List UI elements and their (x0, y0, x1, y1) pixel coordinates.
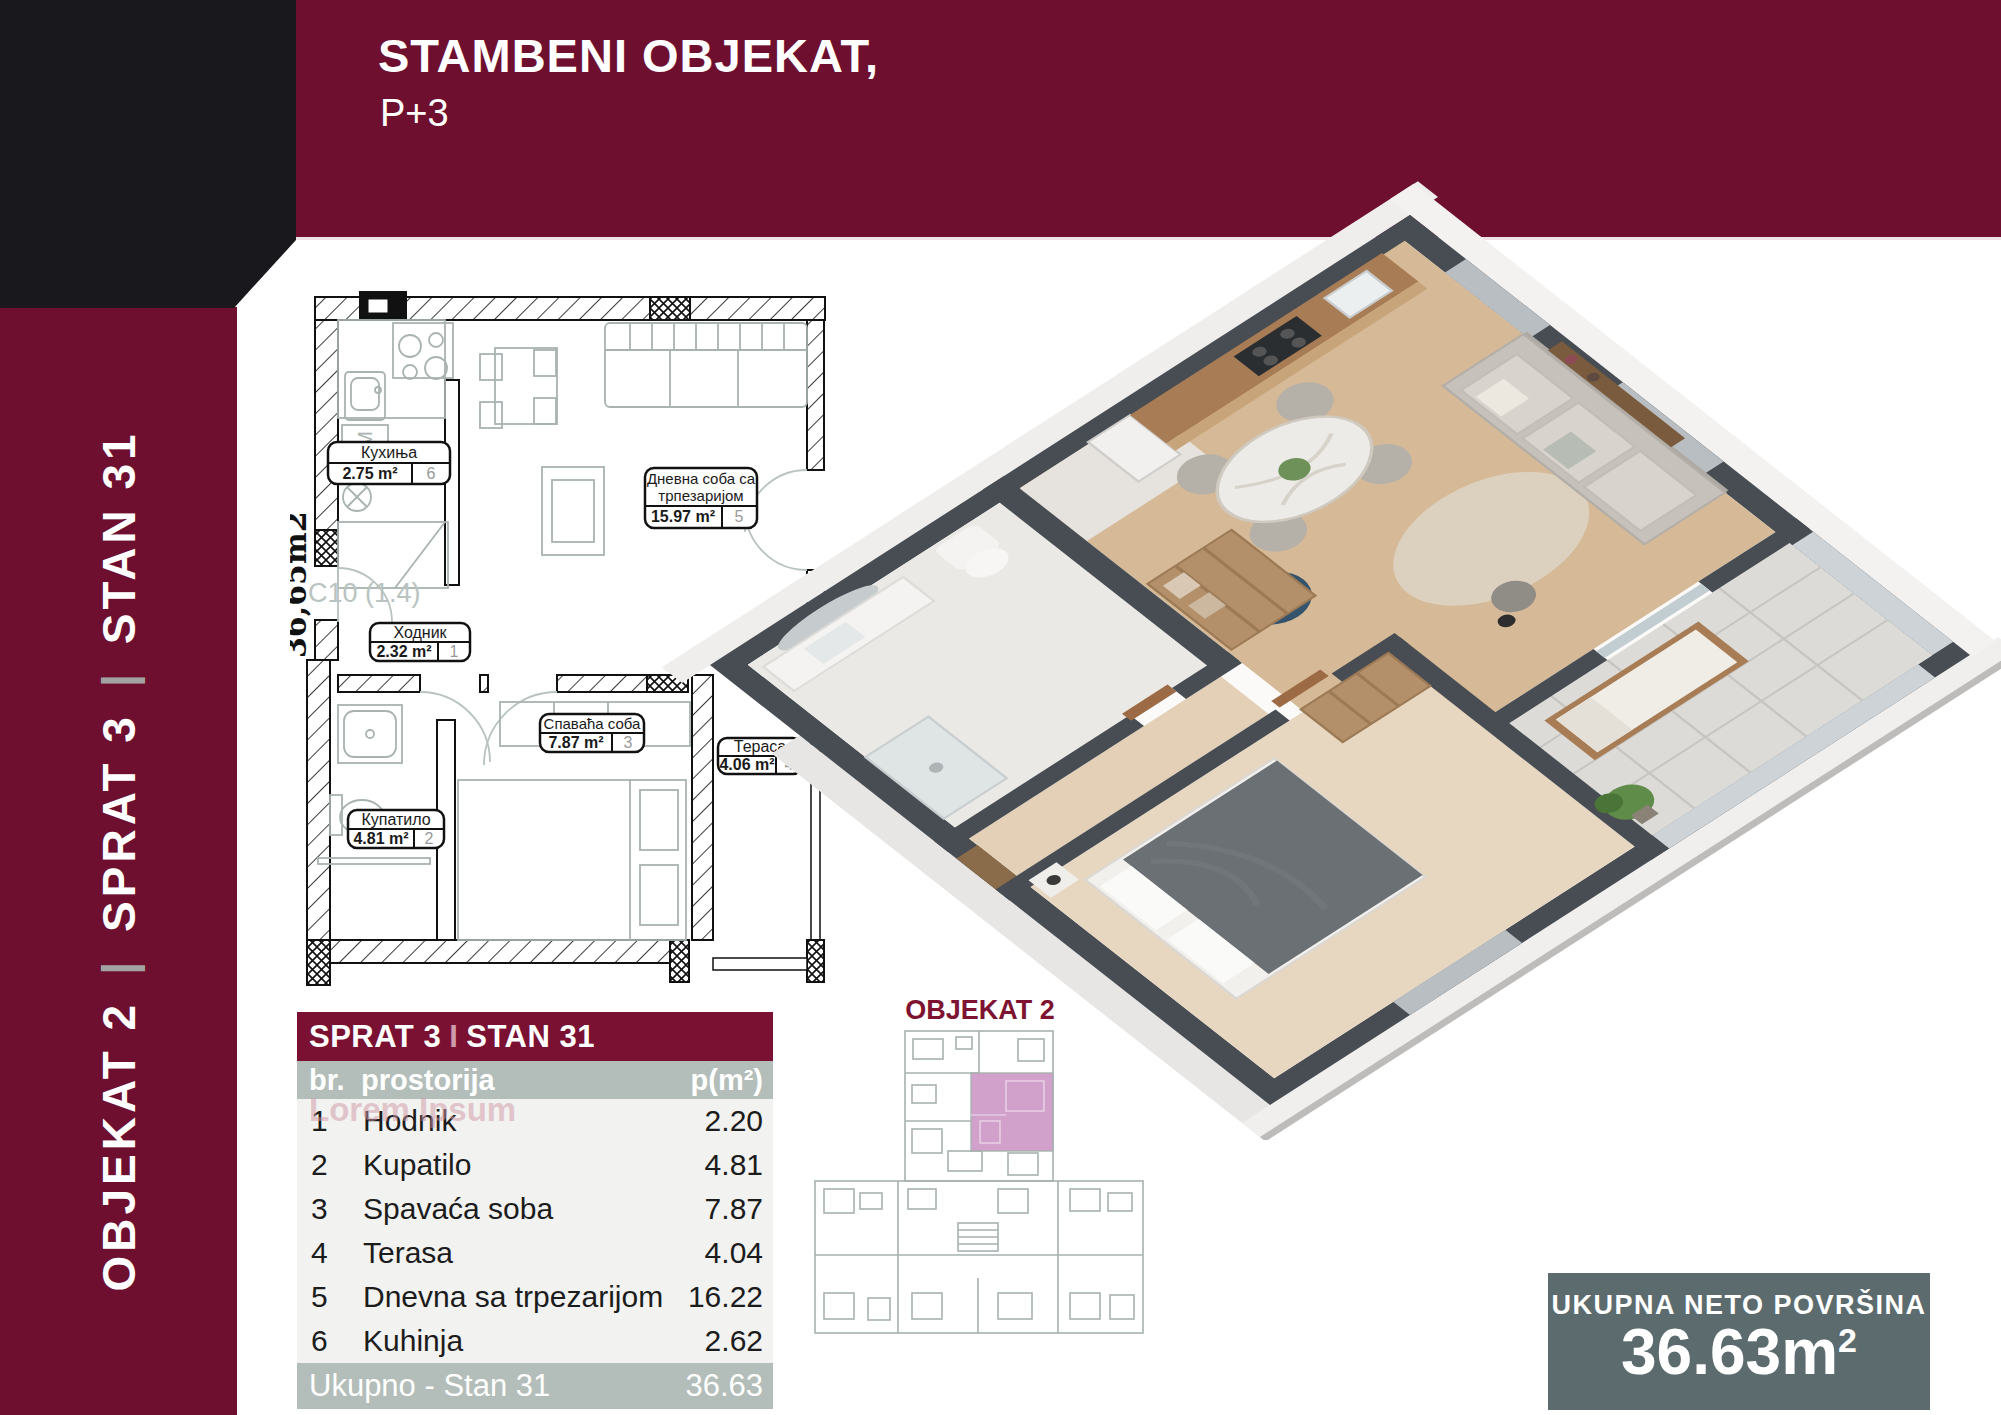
col-header-br: br. (297, 1064, 361, 1097)
plan-unit-code: C10 (1.4) (308, 578, 421, 608)
svg-text:2.32 m²: 2.32 m² (376, 643, 431, 660)
table-footer-row: Ukupno - Stan 31 36.63 (297, 1363, 773, 1409)
corner-polygon (0, 0, 296, 308)
total-area-value: 36.63m2 (1548, 1321, 1930, 1383)
svg-text:1: 1 (450, 643, 459, 660)
row-num: 2 (297, 1148, 363, 1182)
row-num: 5 (297, 1280, 363, 1314)
table-row: 1 Hodnik 2.20 (297, 1099, 773, 1143)
svg-text:4.81 m²: 4.81 m² (353, 830, 408, 847)
svg-text:3: 3 (624, 734, 633, 751)
row-area: 2.62 (705, 1324, 773, 1358)
svg-text:Спаваћа соба: Спаваћа соба (544, 715, 642, 732)
svg-text:6: 6 (427, 465, 436, 482)
col-header-pm2: p(m²) (691, 1064, 773, 1097)
table-row: 6 Kuhinja 2.62 (297, 1319, 773, 1363)
table-row: 3 Spavaća soba 7.87 (297, 1187, 773, 1231)
row-area: 2.20 (705, 1104, 773, 1138)
label-hodnik: Ходник 2.32 m² 1 (370, 623, 470, 661)
table-row: 4 Terasa 4.04 (297, 1231, 773, 1275)
sidebar-stan: STAN 31 (93, 430, 145, 644)
row-name: Kuhinja (363, 1324, 705, 1358)
table-title-separator: I (441, 1019, 466, 1054)
page-subtitle: P+3 (380, 92, 449, 135)
svg-text:Купатило: Купатило (361, 811, 430, 828)
table-body: 1 Hodnik 2.20 2 Kupatilo 4.81 3 Spavaća … (297, 1099, 773, 1363)
row-area: 7.87 (705, 1192, 773, 1226)
sidebar: OBJEKAT 2|SPRAT 3|STAN 31 (0, 307, 237, 1415)
table-row: 5 Dnevna sa trpezarijom 16.22 (297, 1275, 773, 1319)
table-title-left: SPRAT 3 (309, 1019, 441, 1054)
sidebar-objekat: OBJEKAT 2 (93, 1001, 145, 1292)
table-title-right: STAN 31 (466, 1019, 595, 1054)
label-kuhinja: Кухиња 2.75 m² 6 (328, 442, 450, 484)
table-header-row: br. prostorija p(m²) Lorem Ipsum (297, 1061, 773, 1099)
svg-text:2: 2 (425, 830, 434, 847)
total-value-main: 36.63m (1621, 1316, 1838, 1388)
row-num: 3 (297, 1192, 363, 1226)
sidebar-vertical-label: OBJEKAT 2|SPRAT 3|STAN 31 (92, 430, 146, 1291)
label-spavaca: Спаваћа соба 7.87 m² 3 (540, 714, 644, 752)
row-num: 1 (297, 1104, 363, 1138)
row-num: 6 (297, 1324, 363, 1358)
render-floors (747, 241, 1933, 1078)
brochure-page: STAMBENI OBJEKAT, P+3 OBJEKAT 2|SPRAT 3|… (0, 0, 2001, 1415)
svg-text:7.87 m²: 7.87 m² (548, 734, 603, 751)
footer-value: 36.63 (685, 1368, 773, 1404)
row-name: Kupatilo (363, 1148, 705, 1182)
page-title: STAMBENI OBJEKAT, (378, 28, 879, 83)
svg-text:Кухиња: Кухиња (361, 444, 417, 461)
total-value-sup: 2 (1838, 1321, 1857, 1359)
row-area: 4.04 (705, 1236, 773, 1270)
row-name: Dnevna sa trpezarijom (363, 1280, 688, 1314)
col-header-prostorija: prostorija (361, 1064, 691, 1097)
footer-label: Ukupno - Stan 31 (297, 1368, 685, 1404)
corner-fold-shape (0, 0, 320, 320)
row-num: 4 (297, 1236, 363, 1270)
row-name: Spavaća soba (363, 1192, 705, 1226)
row-name: Terasa (363, 1236, 705, 1270)
sidebar-separator-1: | (93, 958, 145, 975)
label-kupatilo: Купатило 4.81 m² 2 (348, 810, 444, 848)
sidebar-sprat: SPRAT 3 (93, 713, 145, 932)
svg-text:Ходник: Ходник (393, 624, 447, 641)
room-table: SPRAT 3ISTAN 31 br. prostorija p(m²) Lor… (297, 1012, 773, 1409)
row-area: 16.22 (688, 1280, 773, 1314)
sidebar-separator-2: | (93, 670, 145, 687)
total-area-box: UKUPNA NETO POVRŠINA 36.63m2 (1548, 1273, 1930, 1410)
render-3d (640, 130, 2001, 1140)
svg-text:2.75 m²: 2.75 m² (342, 465, 397, 482)
row-area: 4.81 (705, 1148, 773, 1182)
table-row: 2 Kupatilo 4.81 (297, 1143, 773, 1187)
table-title: SPRAT 3ISTAN 31 (297, 1012, 773, 1061)
row-name: Hodnik (363, 1104, 705, 1138)
